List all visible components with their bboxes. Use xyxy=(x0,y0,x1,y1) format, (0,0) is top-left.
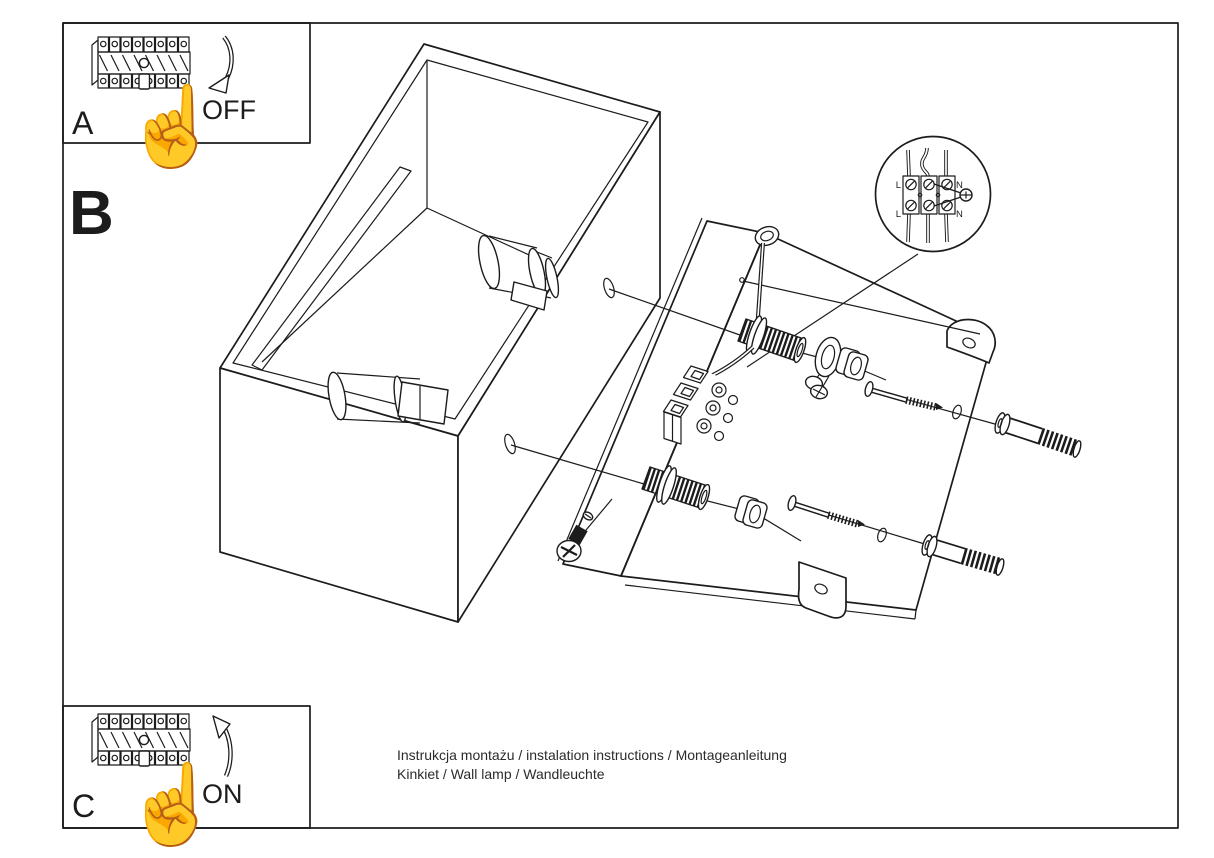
step-c-action: ON xyxy=(202,779,243,809)
label-neutral-top: N xyxy=(956,180,963,191)
wall-plug-lower xyxy=(920,534,1005,576)
step-a-label: A xyxy=(72,105,94,141)
hand-press-icon: ☝ xyxy=(124,79,221,173)
wiring-detail-callout: L L N N xyxy=(876,137,991,252)
instruction-sheet: L L N N ☝ OFF A B ☝ ON C Instrukcja mont… xyxy=(0,0,1214,858)
label-line-bottom: L xyxy=(896,209,901,220)
step-a-action: OFF xyxy=(202,95,256,125)
step-b-label: B xyxy=(69,179,114,248)
label-line-top: L xyxy=(896,180,901,191)
breaker-panel-icon xyxy=(92,714,190,766)
label-neutral-bottom: N xyxy=(956,209,963,220)
caption-line-2: Kinkiet / Wall lamp / Wandleuchte xyxy=(397,766,605,782)
step-c-label: C xyxy=(72,788,95,824)
step-c-content: ☝ ON C xyxy=(72,714,243,851)
wall-plug-upper xyxy=(993,412,1082,458)
step-a-content: ☝ OFF A xyxy=(72,37,256,173)
caption-line-1: Instrukcja montażu / instalation instruc… xyxy=(397,747,787,763)
diagram-canvas: L L N N ☝ OFF A B ☝ ON C Instrukcja mont… xyxy=(0,0,1214,858)
